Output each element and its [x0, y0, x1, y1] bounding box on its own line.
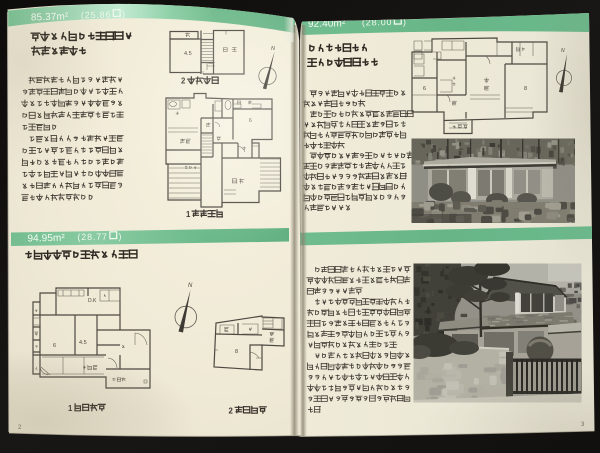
svg-text:D.K: D.K: [88, 298, 97, 304]
svg-text:6: 6: [53, 343, 56, 349]
svg-text:6: 6: [423, 86, 426, 92]
svg-text:8: 8: [524, 86, 527, 92]
svg-text:): ): [122, 9, 125, 19]
svg-text:(28.77: (28.77: [77, 232, 107, 243]
svg-text:N: N: [188, 283, 193, 289]
svg-text:8: 8: [235, 349, 238, 355]
svg-text:94.95m²: 94.95m²: [27, 233, 65, 245]
svg-text:): ): [118, 231, 121, 241]
svg-text:2: 2: [229, 407, 234, 416]
svg-text:4.5: 4.5: [79, 340, 87, 346]
